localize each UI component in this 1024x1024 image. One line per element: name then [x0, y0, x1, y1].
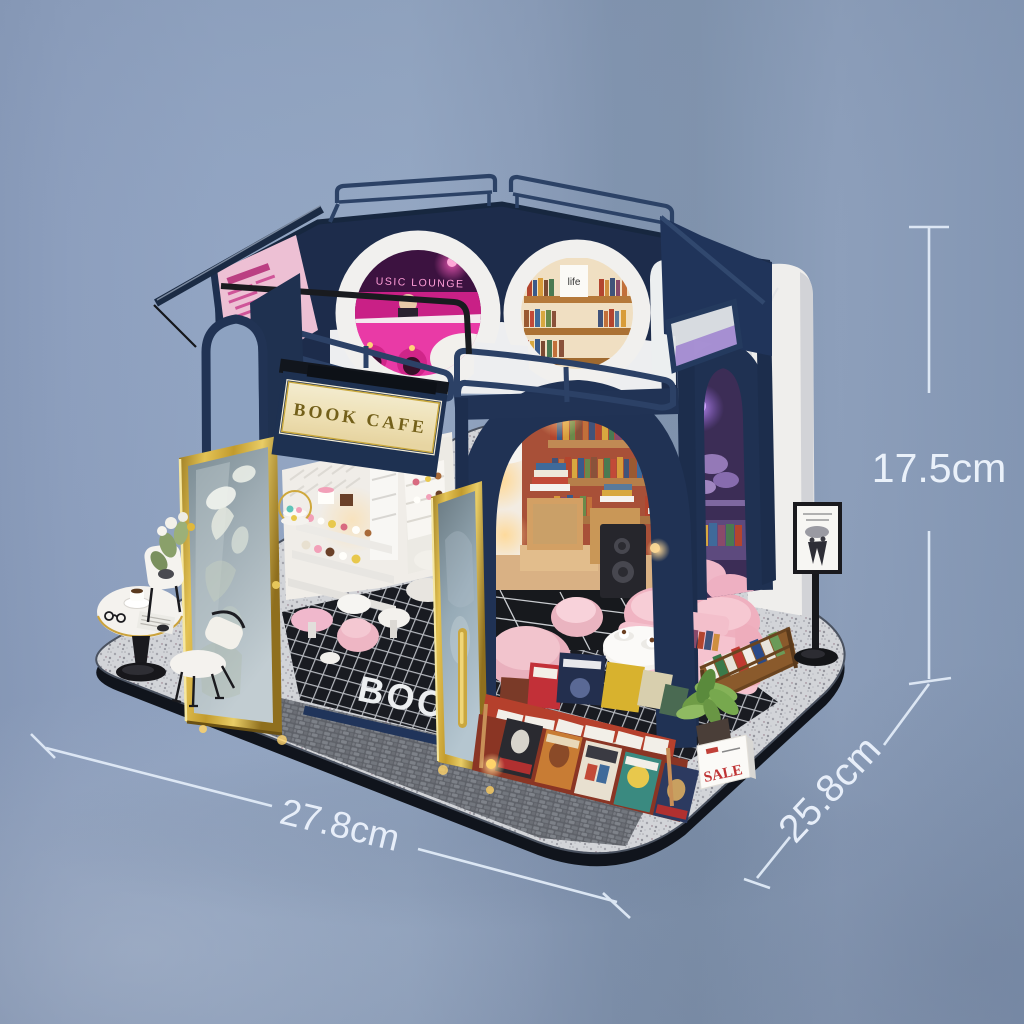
svg-text:life: life: [568, 277, 581, 288]
svg-text:17.5cm: 17.5cm: [872, 445, 1006, 491]
